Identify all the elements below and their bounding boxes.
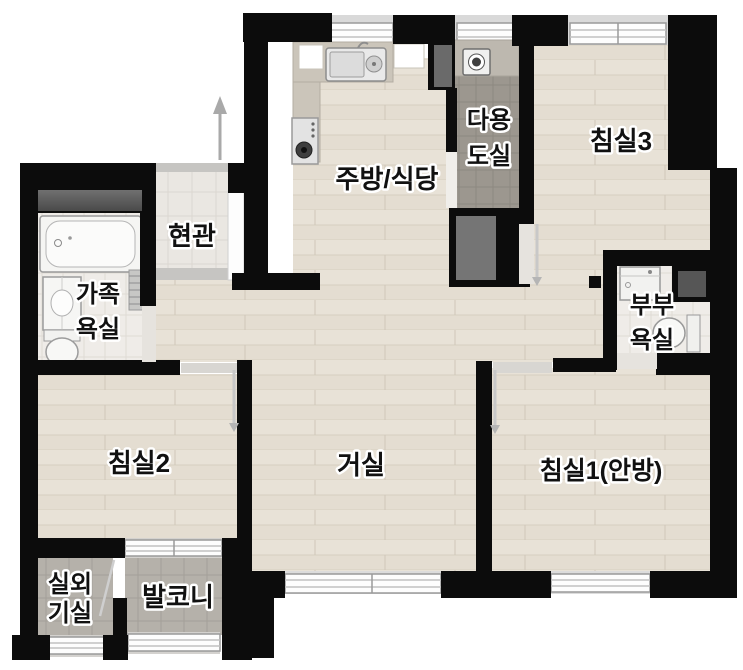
label-bedroom1: 침실1(안방) — [540, 457, 663, 485]
label-bedroom2: 침실2 — [108, 448, 170, 478]
kitchen-duct — [434, 45, 452, 87]
label-balcony: 발코니 — [142, 582, 214, 612]
window-bedroom3 — [570, 23, 666, 44]
floor-entrance-tile — [156, 170, 228, 270]
floor-plan-drawing: 주방/식당 다용 도실 침실3 현관 가족 욕실 부부 욕실 침실2 거실 침실… — [0, 0, 743, 670]
label-outdoor-unit-line2: 기실 — [48, 600, 92, 627]
door-utility — [446, 152, 457, 208]
entrance-step-sill — [156, 268, 228, 280]
window-bedroom1 — [551, 574, 650, 592]
counter-cabinet-white-right — [394, 44, 424, 68]
floor-hall-join — [230, 287, 276, 362]
label-master-bath-line2: 욕실 — [630, 327, 674, 354]
door-master-bath — [617, 353, 657, 369]
stove-cooktop — [292, 118, 318, 164]
label-utility-line2: 도실 — [467, 143, 511, 170]
label-master-bath-line1: 부부 — [630, 292, 674, 319]
shoe-closet — [228, 191, 244, 280]
entrance-door-sill — [156, 163, 228, 172]
label-kitchen-dining: 주방/식당 — [336, 164, 439, 194]
label-family-bath-line2: 욕실 — [76, 316, 120, 343]
entry-direction-arrow — [213, 96, 227, 160]
window-kitchen — [329, 23, 393, 44]
label-utility-line1: 다용 — [467, 107, 511, 134]
bathtub — [40, 216, 141, 272]
window-balcony-bottom — [128, 634, 220, 651]
label-entrance: 현관 — [168, 221, 216, 251]
washing-machine — [463, 49, 490, 75]
label-family-bath-line1: 가족 — [76, 281, 120, 308]
door-bedroom3 — [519, 224, 534, 284]
label-outdoor-unit-line1: 실외 — [48, 571, 92, 598]
bath-duct — [678, 271, 706, 297]
floor-plan: 주방/식당 다용 도실 침실3 현관 가족 욕실 부부 욕실 침실2 거실 침실… — [0, 0, 743, 670]
floor-living — [252, 287, 476, 572]
door-family-bath — [142, 306, 156, 362]
storage-closet — [38, 190, 142, 211]
door-bedroom1 — [493, 362, 552, 373]
refrigerator-niche — [456, 216, 496, 280]
window-outdoor-unit — [48, 637, 105, 654]
floor-hall-entrance — [156, 278, 237, 362]
label-living-room: 거실 — [337, 450, 385, 480]
counter-cabinet-white-left — [299, 45, 323, 69]
kitchen-sink — [326, 43, 386, 81]
window-living — [285, 574, 441, 593]
label-bedroom3: 침실3 — [590, 126, 652, 156]
window-bedroom2-balcony — [125, 540, 222, 556]
door-bedroom2 — [181, 363, 237, 373]
